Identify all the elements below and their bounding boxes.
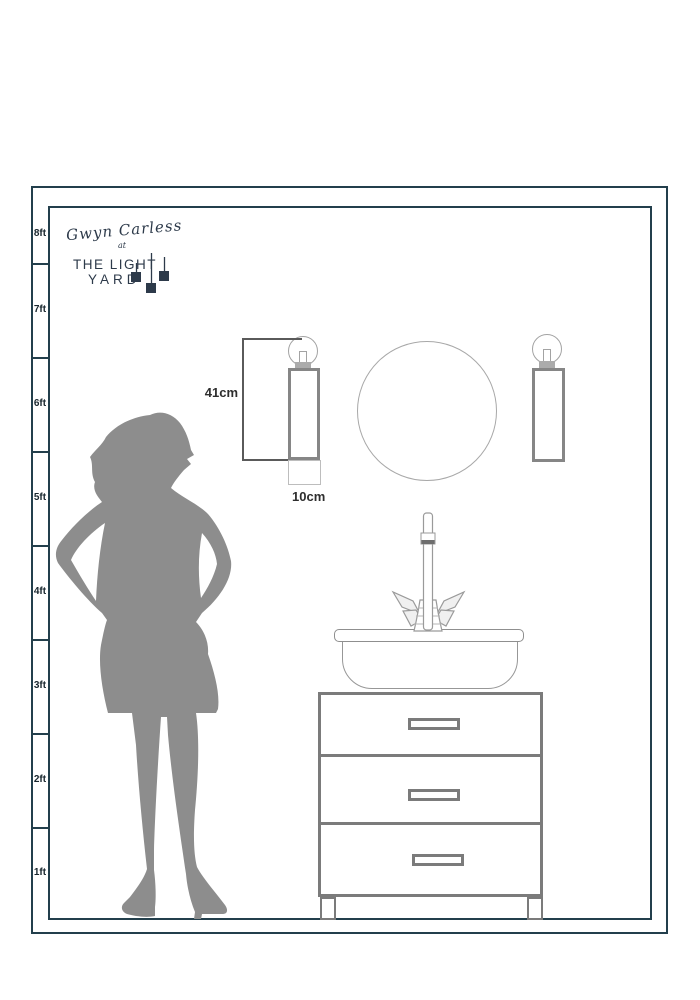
ruler-tick — [31, 827, 50, 829]
ruler-label-2ft: 2ft — [29, 774, 51, 786]
woman-silhouette — [50, 405, 240, 921]
ruler-label-1ft: 1ft — [29, 867, 51, 879]
ruler-label-8ft: 8ft — [29, 228, 51, 240]
faucet-spout — [424, 513, 433, 630]
ruler-tick — [31, 545, 50, 547]
vanity-foot-right — [527, 897, 543, 920]
ruler-label-3ft: 3ft — [29, 680, 51, 692]
pendant-lights-icon — [125, 248, 175, 298]
drawer-handle-bottom — [412, 854, 464, 866]
left-sconce-body — [288, 368, 320, 460]
drawer-handle-top — [408, 718, 460, 730]
drawer-divider — [321, 754, 540, 757]
height-dimension-tick-top — [242, 338, 302, 340]
ruler-label-5ft: 5ft — [29, 492, 51, 504]
ruler-tick — [31, 733, 50, 735]
sconce-width-extension-box — [288, 460, 321, 485]
drawer-handle-middle — [408, 789, 460, 801]
right-sconce-body — [532, 368, 565, 462]
faucet — [389, 505, 471, 635]
basin-bowl — [342, 640, 518, 689]
vanity-foot-left — [320, 897, 336, 920]
sconce-width-label: 10cm — [292, 489, 325, 504]
height-dimension-tick-bottom — [242, 459, 288, 461]
ruler-tick — [31, 357, 50, 359]
ruler-label-6ft: 6ft — [29, 398, 51, 410]
ruler-tick — [31, 451, 50, 453]
height-dimension-line — [242, 338, 244, 460]
round-mirror — [357, 341, 497, 481]
scale-diagram-canvas: 8ft 7ft 6ft 5ft 4ft 3ft 2ft 1ft Gwyn Car… — [0, 0, 700, 1000]
sconce-height-label: 41cm — [202, 385, 238, 400]
faucet-collar-band — [422, 540, 435, 544]
ruler-label-7ft: 7ft — [29, 304, 51, 316]
ruler-tick — [31, 263, 50, 265]
ruler-label-4ft: 4ft — [29, 586, 51, 598]
ruler-tick — [31, 639, 50, 641]
drawer-divider — [321, 822, 540, 825]
right-sconce-socket — [539, 361, 555, 368]
